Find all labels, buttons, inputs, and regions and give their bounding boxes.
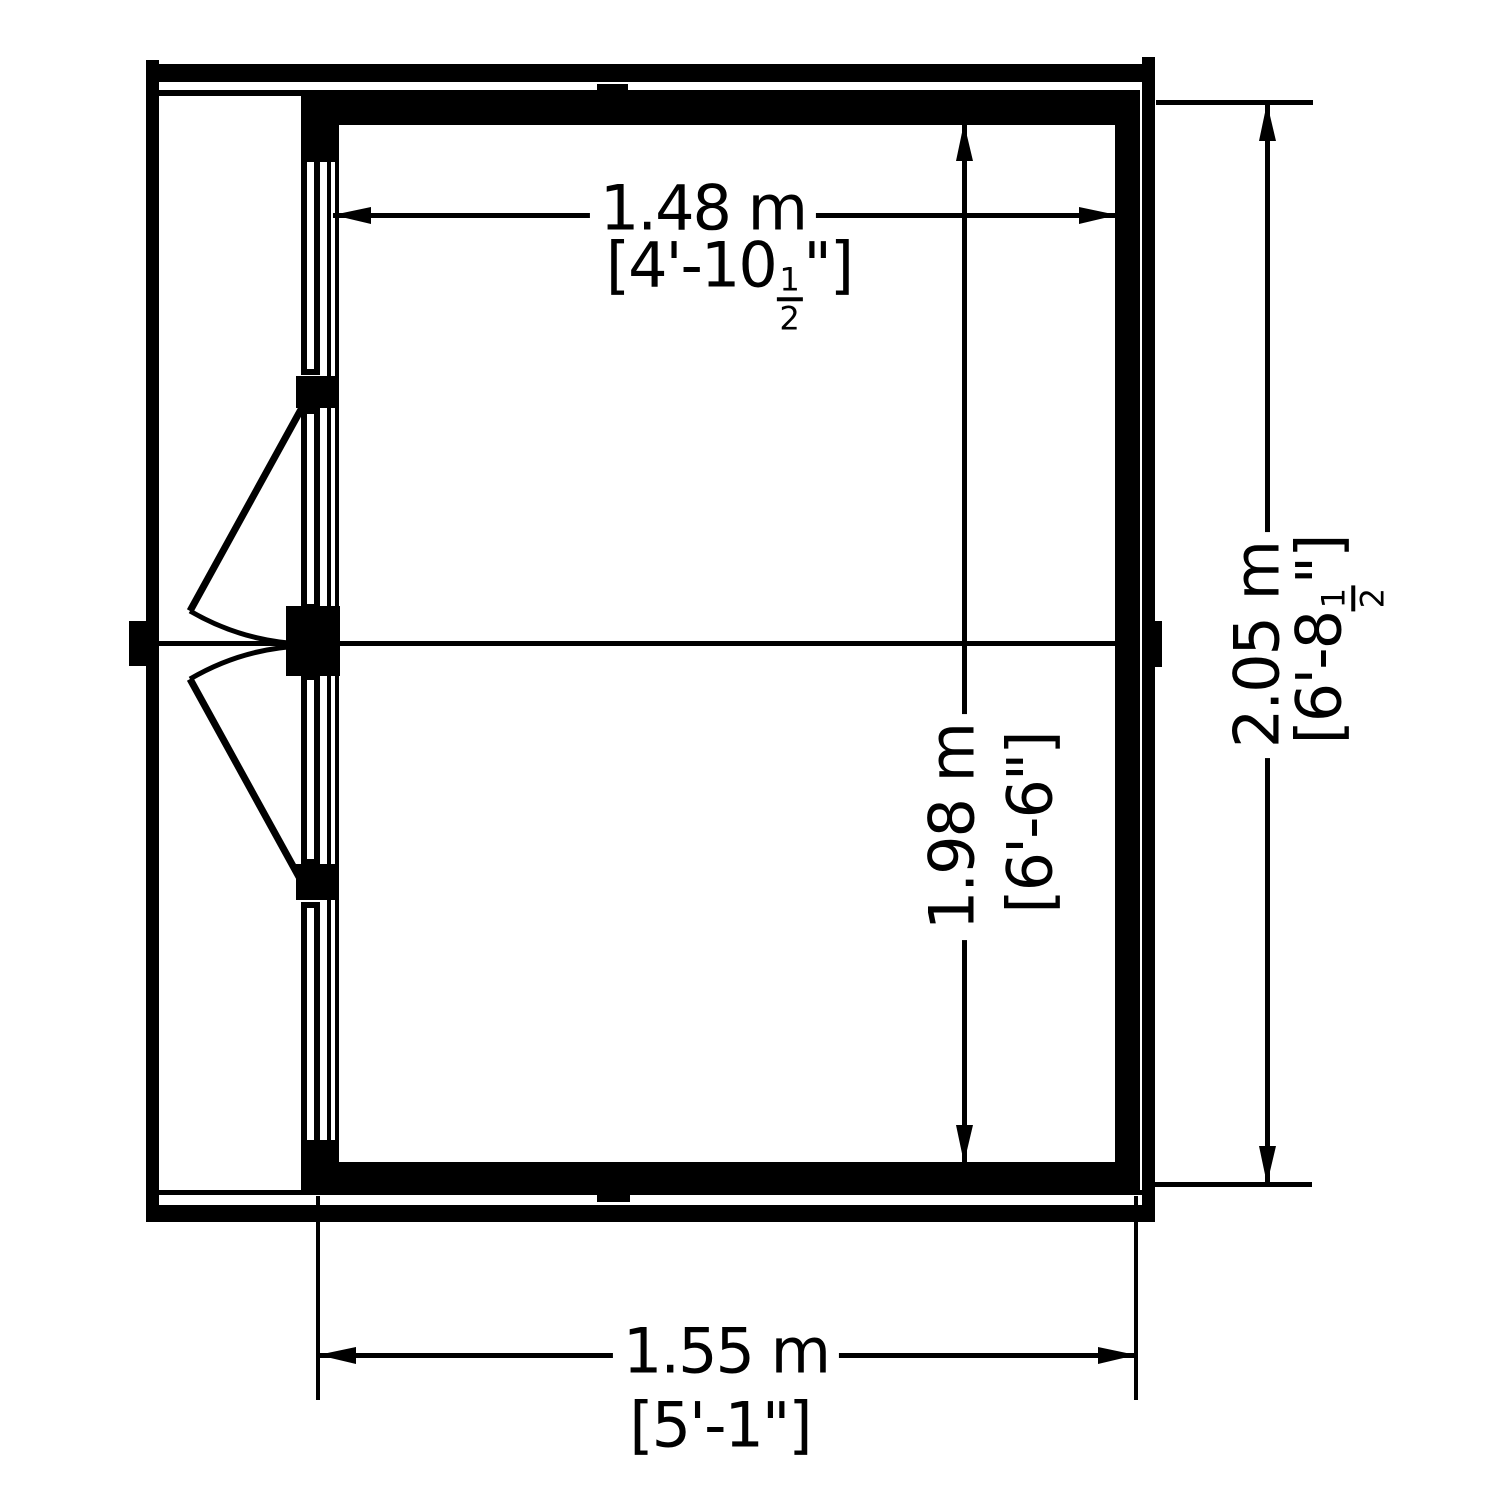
- shed-floorplan-page: 1.48 m [4'-1012"] 1.98 m [6'-6"] 2.05 m …: [0, 0, 1500, 1500]
- door-swing-arc-lower: [190, 646, 302, 679]
- extension-line-bottom: [1155, 1182, 1312, 1187]
- inner-depth-metric-label: 1.98 m: [917, 714, 986, 940]
- inner-depth-imperial-label: [6'-6"]: [995, 722, 1064, 923]
- arrowhead-up: [1259, 103, 1276, 141]
- ridge-end-right: [1144, 621, 1162, 667]
- wall-bottom-nub: [597, 1193, 630, 1202]
- dim-line: [962, 123, 967, 1163]
- extension-line-top: [1156, 100, 1313, 105]
- roof-bar-bottom: [146, 1205, 1155, 1222]
- door-leaf-lower-open: [190, 679, 304, 886]
- wall-top: [303, 90, 1140, 125]
- arrowhead-right: [1079, 207, 1117, 224]
- imperial-prefix: [4'-10: [606, 228, 776, 301]
- front-panel-segment-1: [304, 146, 317, 372]
- door-leaf-lower-closed: [304, 677, 317, 862]
- fraction: 12: [1316, 585, 1390, 611]
- outer-width-imperial-label: [5'-1"]: [619, 1390, 820, 1459]
- arrowhead-right: [1098, 1347, 1136, 1364]
- outer-depth-imperial-label: [6'-812"]: [1284, 526, 1391, 755]
- fraction-denominator: 2: [779, 301, 800, 336]
- wall-top-nub: [597, 84, 628, 92]
- wall-right: [1115, 90, 1140, 1193]
- extension-line-right: [1134, 1196, 1138, 1400]
- door-jamb-bottom: [301, 1140, 338, 1194]
- inner-width-imperial-label: [4'-1012"]: [596, 230, 862, 337]
- ridge-end-left: [129, 621, 149, 666]
- fraction-denominator: 2: [1355, 588, 1390, 609]
- outer-depth-metric-label: 2.05 m: [1222, 532, 1291, 758]
- door-jamb-top: [301, 90, 338, 162]
- extension-line-left: [316, 1196, 320, 1400]
- roof-bar-top: [146, 64, 1155, 82]
- door-leaf-upper-open: [190, 404, 304, 611]
- imperial-suffix: "]: [1282, 536, 1355, 585]
- arrowhead-down: [1259, 1146, 1276, 1184]
- door-leaf-upper-closed: [304, 411, 317, 607]
- arrowhead-down: [956, 1125, 973, 1163]
- fraction-numerator: 1: [1316, 585, 1355, 611]
- door-latch-center: [286, 606, 340, 676]
- imperial-suffix: "]: [803, 228, 852, 301]
- fraction: 12: [777, 262, 803, 336]
- arrowhead-up: [956, 123, 973, 161]
- front-panel-segment-2: [304, 905, 317, 1155]
- door-swing-arc-upper: [190, 611, 302, 644]
- fraction-numerator: 1: [777, 262, 803, 301]
- arrowhead-left: [318, 1347, 356, 1364]
- imperial-prefix: [6'-8: [1282, 612, 1355, 745]
- outer-width-metric-label: 1.55 m: [613, 1316, 839, 1385]
- wall-bottom: [303, 1162, 1140, 1192]
